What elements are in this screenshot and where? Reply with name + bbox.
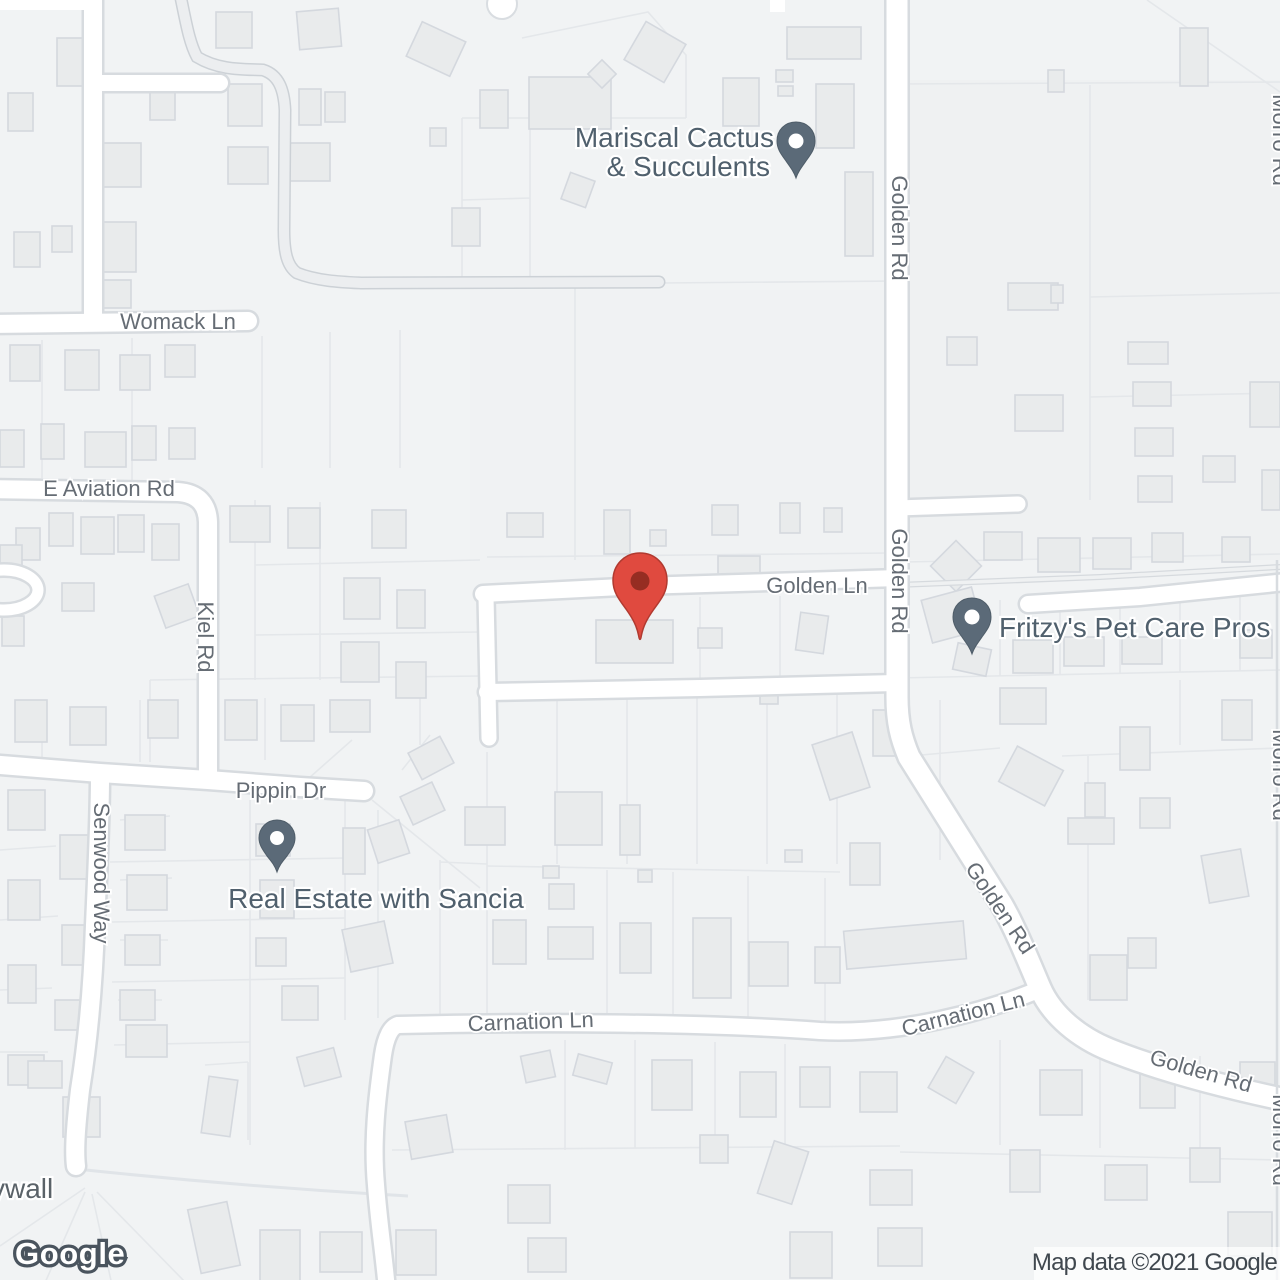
svg-text:Fritzy's Pet Care Pros: Fritzy's Pet Care Pros [999,612,1270,643]
svg-text:Real Estate with Sancia: Real Estate with Sancia [228,883,524,914]
svg-text:Golden Ln: Golden Ln [766,573,868,598]
svg-text:Morro Rd: Morro Rd [1268,1094,1280,1186]
svg-text:Womack Ln: Womack Ln [120,309,236,334]
svg-text:Pippin Dr: Pippin Dr [236,778,326,803]
svg-text:Kiel Rd: Kiel Rd [193,602,218,673]
svg-text:Mariscal Cactus: Mariscal Cactus [575,122,774,153]
svg-text:E Aviation Rd: E Aviation Rd [43,476,175,501]
svg-text:Carnation Ln: Carnation Ln [467,1007,594,1036]
svg-text:Morro Rd: Morro Rd [1268,729,1280,821]
svg-text:& Succulents: & Succulents [607,151,770,182]
svg-text:Map data ©2021 Google: Map data ©2021 Google [1032,1249,1278,1276]
svg-text:Golden Rd: Golden Rd [887,175,912,280]
svg-text:ywall: ywall [0,1173,53,1204]
svg-text:Senwood Way: Senwood Way [89,802,114,943]
svg-text:Golden Rd: Golden Rd [887,528,912,633]
svg-text:Morro Rd: Morro Rd [1268,94,1280,186]
svg-text:Google: Google [15,1236,125,1271]
